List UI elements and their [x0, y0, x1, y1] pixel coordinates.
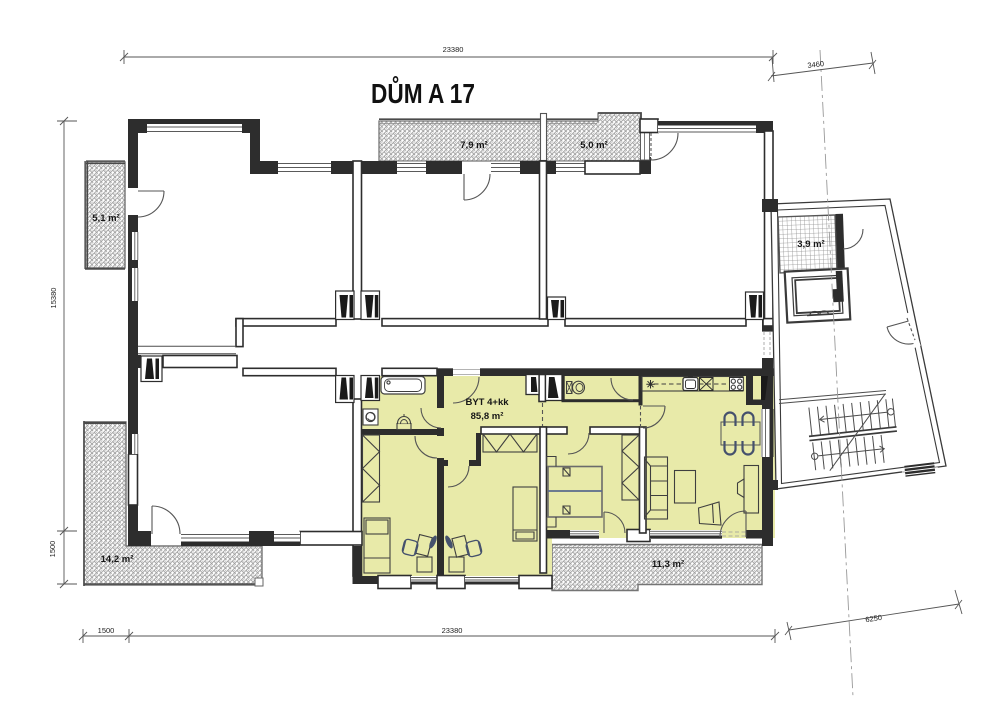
svg-text:85,8 m²: 85,8 m² — [471, 411, 504, 422]
svg-text:1500: 1500 — [48, 541, 57, 558]
svg-text:1500: 1500 — [98, 626, 115, 635]
svg-text:5,0 m²: 5,0 m² — [580, 140, 607, 151]
svg-text:DŮM A 17: DŮM A 17 — [371, 76, 475, 109]
svg-text:7,9 m²: 7,9 m² — [460, 140, 487, 151]
svg-text:11,3 m²: 11,3 m² — [652, 559, 684, 570]
svg-text:BYT 4+kk: BYT 4+kk — [465, 397, 509, 408]
svg-text:23380: 23380 — [442, 626, 463, 635]
svg-text:14,2 m²: 14,2 m² — [101, 554, 134, 565]
svg-text:3,9 m²: 3,9 m² — [797, 239, 824, 250]
svg-text:23380: 23380 — [443, 45, 464, 54]
svg-text:15380: 15380 — [49, 288, 58, 309]
svg-text:5,1 m²: 5,1 m² — [92, 213, 119, 224]
